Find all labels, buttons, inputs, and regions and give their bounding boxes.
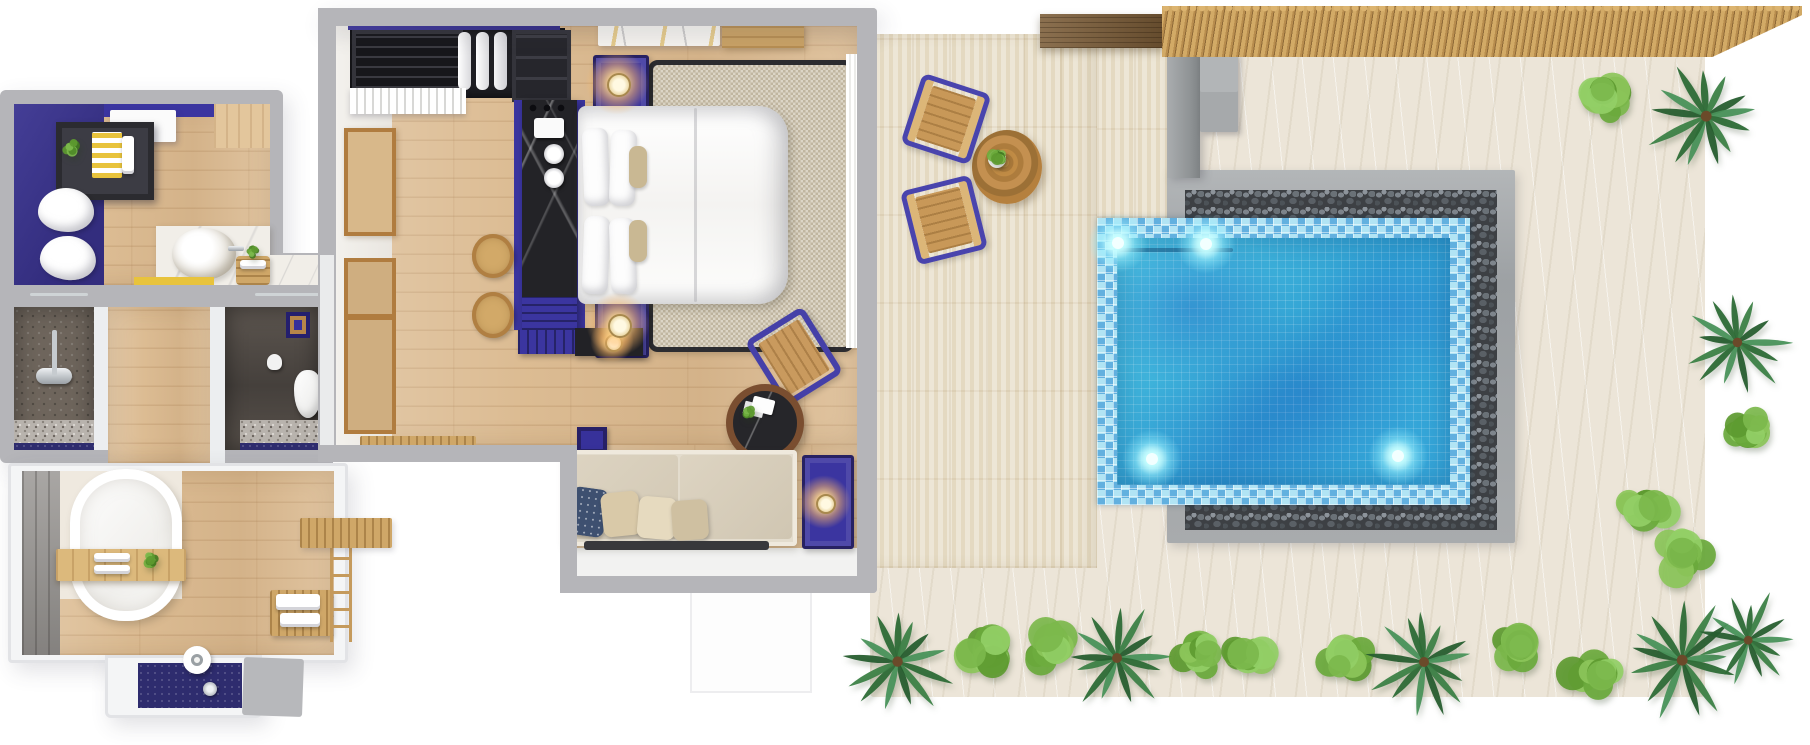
terrace-deck-extension (1097, 34, 1167, 218)
bistro-table (972, 130, 1042, 204)
outdoor-shower-wall (1167, 52, 1200, 178)
wc-shelf-cube (286, 312, 310, 338)
bench-towels (276, 594, 320, 610)
towel-bar (30, 293, 88, 296)
caddy-towel (94, 553, 130, 562)
sofa-pillow (600, 490, 642, 538)
towel-bar (255, 293, 325, 296)
bed-pillow (582, 216, 611, 295)
shower-drain-strip (14, 443, 94, 450)
wood-door-panel (344, 128, 396, 236)
outdoor-bench (1200, 52, 1238, 132)
pool-light (1146, 453, 1158, 465)
hanging-robe (476, 32, 489, 90)
pool-light (1392, 450, 1404, 462)
interior-wall (94, 307, 108, 450)
pergola-bamboo-slats (1162, 6, 1802, 57)
bedroom-wall-step (560, 445, 577, 593)
shower-bench (14, 420, 94, 443)
counter-accent-strip (134, 277, 214, 285)
bench-towels (280, 613, 320, 627)
desk-knobs (528, 103, 568, 113)
wc-bench (240, 420, 318, 443)
interior-wall (210, 307, 225, 463)
wardrobe-side-shelves (512, 30, 571, 102)
shower-pipe (52, 330, 57, 376)
bathtub (70, 469, 182, 621)
terrace-deck (875, 34, 1097, 568)
vessel-sink (172, 228, 236, 280)
desk-stool (472, 292, 514, 338)
bedroom-wall-bottom-left (318, 445, 577, 462)
folded-towels-white (122, 136, 134, 174)
hanging-robe (458, 32, 471, 90)
villa-floor-plan (0, 0, 1810, 745)
framed-panel (344, 316, 396, 434)
sofa-base (584, 541, 769, 550)
kettle-tray (534, 118, 564, 138)
stone-plank-wall (22, 471, 60, 655)
duvet-fold (694, 108, 697, 302)
bamboo-pole-ends (1162, 4, 1802, 13)
pool-water (1117, 238, 1450, 485)
pool-light (1112, 237, 1124, 249)
bathrobe (38, 188, 94, 232)
framed-panel (344, 258, 396, 318)
bedroom-wall-top (318, 8, 877, 26)
sink-faucet (228, 246, 244, 251)
desk-stool (472, 234, 514, 278)
sofa-pillow (671, 499, 710, 541)
desk-drawer (522, 297, 577, 330)
pergola-plank-roof (1040, 14, 1164, 48)
king-bed (578, 106, 788, 304)
toilet-paper-holder (267, 354, 282, 370)
bedroom-wall-left-white (320, 255, 334, 445)
shower-mixer (203, 682, 217, 696)
palm-plant (1691, 583, 1805, 697)
cup (544, 144, 564, 164)
entry-door-panel (214, 104, 270, 148)
dresser (518, 330, 575, 354)
stool-towels (240, 260, 266, 269)
chair-seat (915, 186, 974, 253)
shrub-plant (1701, 387, 1787, 473)
bed-pillow (582, 128, 611, 207)
console-shelf (722, 24, 804, 48)
hanging-robe (494, 32, 507, 90)
nook-gray-wall (242, 657, 304, 717)
entry-porch (690, 593, 812, 693)
table-plant-pot (988, 150, 1006, 168)
bedside-lamp (607, 73, 631, 97)
wc-floor-strip (240, 443, 318, 450)
pool-light (1200, 238, 1212, 250)
cup (544, 168, 564, 188)
sofa-lamp (816, 494, 836, 514)
chair-seat (915, 85, 976, 152)
divider-wall (14, 285, 333, 307)
folded-towels-yellow (92, 132, 122, 178)
bathroom-corridor-floor (108, 307, 210, 463)
rain-shower-head (183, 646, 211, 674)
caddy-towel (94, 565, 130, 574)
bedroom-wall-right (857, 8, 877, 593)
accent-pillow (629, 220, 647, 262)
outdoor-step-mat (300, 518, 392, 548)
desk-edge-strip (514, 100, 522, 330)
bedroom-south-ledge (577, 548, 857, 576)
accent-pillow (629, 146, 647, 188)
wardrobe-louver-strip (350, 88, 466, 114)
bedside-lamp (608, 314, 632, 338)
bedroom-wall-bottom-right (560, 576, 877, 593)
